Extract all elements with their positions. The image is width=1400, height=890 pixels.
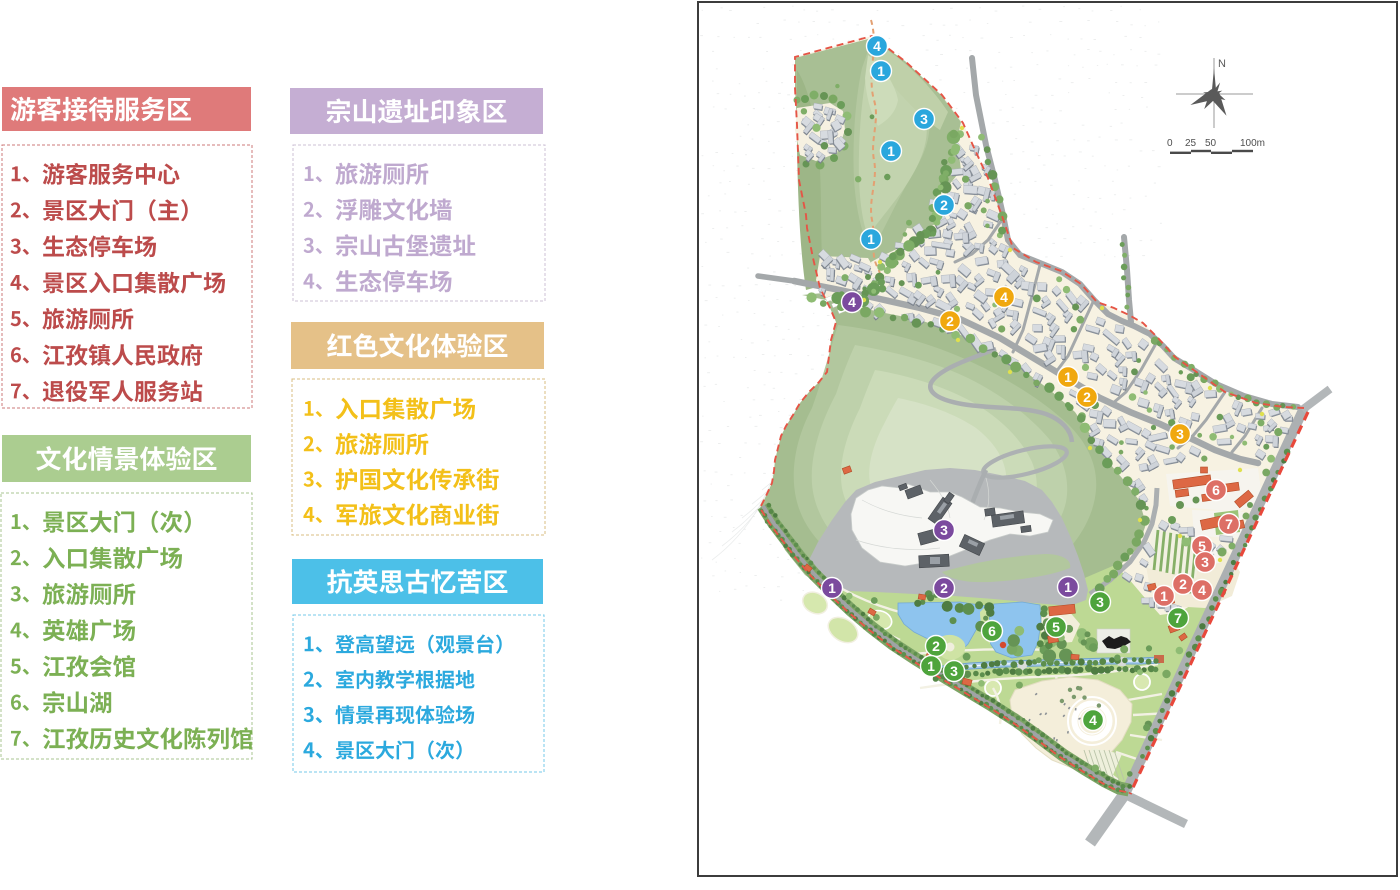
svg-text:1: 1 xyxy=(877,63,885,79)
svg-text:2: 2 xyxy=(1083,389,1091,405)
svg-text:1: 1 xyxy=(1064,369,1072,385)
svg-text:1: 1 xyxy=(1160,588,1168,604)
svg-text:2: 2 xyxy=(940,197,948,213)
svg-text:50: 50 xyxy=(1205,138,1217,149)
svg-text:4: 4 xyxy=(848,294,856,310)
svg-text:6: 6 xyxy=(988,623,996,639)
svg-text:4: 4 xyxy=(1198,582,1206,598)
svg-text:1: 1 xyxy=(867,231,875,247)
svg-text:1: 1 xyxy=(887,143,895,159)
svg-text:4: 4 xyxy=(1000,289,1008,305)
svg-text:4: 4 xyxy=(1089,712,1097,728)
svg-text:25: 25 xyxy=(1185,138,1197,149)
svg-text:1: 1 xyxy=(828,580,836,596)
svg-text:1: 1 xyxy=(927,658,935,674)
svg-text:1: 1 xyxy=(1064,579,1072,595)
svg-text:3: 3 xyxy=(920,111,928,127)
svg-text:3: 3 xyxy=(1201,554,1209,570)
svg-text:3: 3 xyxy=(950,663,958,679)
svg-text:5: 5 xyxy=(1052,619,1060,635)
svg-text:2: 2 xyxy=(940,580,948,596)
svg-text:100m: 100m xyxy=(1240,138,1265,149)
svg-text:2: 2 xyxy=(946,313,954,329)
svg-text:7: 7 xyxy=(1174,610,1182,626)
svg-text:2: 2 xyxy=(1179,576,1187,592)
svg-text:N: N xyxy=(1218,58,1226,70)
svg-text:3: 3 xyxy=(940,522,948,538)
svg-text:3: 3 xyxy=(1176,426,1184,442)
svg-text:3: 3 xyxy=(1096,594,1104,610)
svg-text:2: 2 xyxy=(932,638,940,654)
svg-text:6: 6 xyxy=(1212,482,1220,498)
svg-text:0: 0 xyxy=(1167,138,1173,149)
svg-text:7: 7 xyxy=(1225,516,1233,532)
svg-text:4: 4 xyxy=(873,38,881,54)
